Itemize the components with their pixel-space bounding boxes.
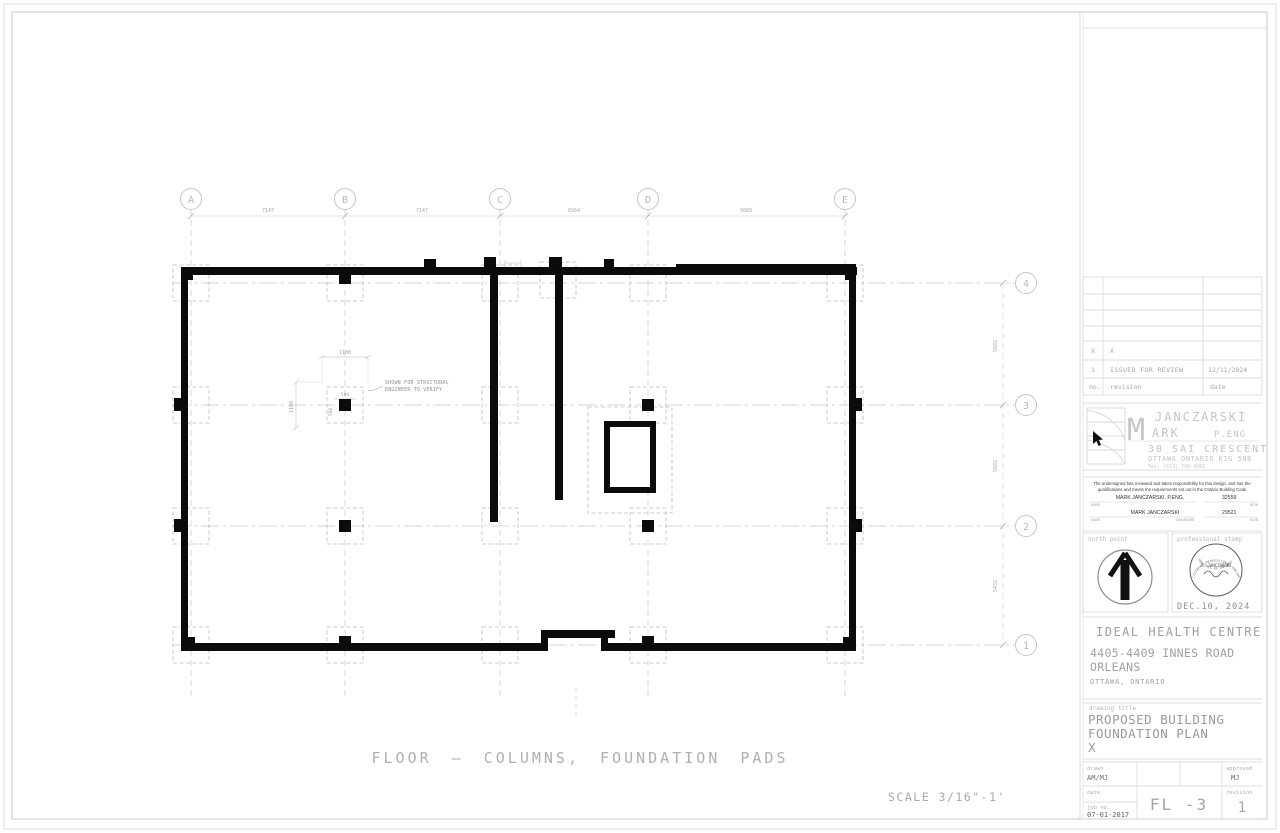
decl-name1: MARK JANCZARSKI, P.ENG. (1116, 495, 1185, 501)
stamp-text-mid: J. JANCZARSKI (1200, 563, 1232, 568)
drawing-title-line3: X (1088, 740, 1096, 755)
firm-peng: P.ENG (1214, 430, 1246, 440)
project-city: OTTAWA, ONTARIO (1090, 678, 1165, 686)
firm-address2: OTTAWA ONTARIO K1G 5N8 (1148, 455, 1252, 463)
scale-label: SCALE 3/16"-1' (888, 790, 1006, 804)
floor-plan-svg: 7147 7147 6564 9089 5682 5682 5432 A B C… (0, 0, 1280, 833)
north-point-label: north point (1088, 536, 1128, 543)
column-d3 (642, 399, 654, 411)
pad-dim-height: 1100 (289, 401, 295, 413)
walls (174, 257, 862, 651)
grid-bubble-4: 4 (1023, 279, 1029, 290)
decl-line2: qualifications and meets the requirement… (1098, 487, 1247, 492)
professional-stamp-box: professional stamp LICENSED PROFESSIONAL… (0, 0, 1262, 612)
stamp-label: professional stamp (1177, 536, 1242, 543)
pad-dim-width: 1100 (339, 350, 351, 356)
col-dim-height: 500 (328, 408, 334, 416)
grid-bubble-3: 3 (1023, 401, 1029, 412)
rev-row2-date: 12/11/2024 (1208, 366, 1247, 374)
engineer-note: SHOWN FOR STRUCTURAL ENGINEER TO VERIFY (368, 380, 449, 393)
stamp-signature (1204, 571, 1228, 577)
foundation-pads (173, 262, 863, 663)
decl-label-bcin1: BCIN (1250, 503, 1258, 507)
rev-row1-no: X (1091, 347, 1095, 355)
firm-name-top: JANCZARSKI (1155, 410, 1247, 424)
approved-value: MJ (1231, 774, 1239, 782)
grid-bubble-b: B (342, 195, 348, 206)
stamp-date: DEC.10, 2024 (1177, 602, 1250, 612)
decl-label-bcin2: BCIN (1250, 518, 1258, 522)
firm-logo-graphic (1087, 408, 1125, 464)
drawing-title-line1: PROPOSED BUILDING (1088, 712, 1224, 727)
column-d1 (642, 636, 654, 649)
column-b1 (339, 636, 351, 649)
firm-name-bottom: ARK (1152, 426, 1180, 440)
rev-header-no: no. (1089, 383, 1101, 391)
note-line-2: ENGINEER TO VERIFY (385, 387, 442, 393)
date-label: date (1087, 790, 1100, 796)
drawn-value: AM/MJ (1087, 774, 1108, 782)
sheet-number: FL -3 (1150, 795, 1208, 814)
project-box: IDEAL HEALTH CENTRE 4405-4409 INNES ROAD… (1083, 617, 1262, 699)
decl-bcin2: 29521 (1222, 510, 1237, 516)
firm-logo-block: M JANCZARSKI ARK P.ENG 30 SAI CRESCENT O… (1083, 403, 1268, 470)
firm-address1: 30 SAI CRESCENT (1148, 444, 1268, 455)
project-address2: ORLEANS (1090, 660, 1141, 674)
plan-caption: FLOOR — COLUMNS, FOUNDATION PADS (372, 749, 789, 767)
grid-bubble-e: E (842, 195, 848, 206)
grid-bubble-a: A (188, 195, 194, 206)
column-d2 (642, 520, 654, 532)
project-name: IDEAL HEALTH CENTRE (1096, 625, 1262, 639)
grid-lines (172, 210, 1015, 716)
rev-row2-no: 1 (1091, 366, 1095, 374)
revision-table: X X 1 ISSUED FOR REVIEW 12/11/2024 no. r… (1083, 277, 1262, 395)
column-b2 (339, 520, 351, 532)
revision-value: 1 (1238, 800, 1246, 816)
decl-label-name1: NAME (1091, 503, 1100, 507)
grid-bubble-c: C (497, 195, 503, 206)
approved-label: approved (1226, 766, 1253, 772)
north-point-box: north point (1083, 533, 1168, 612)
dim-d-e: 9089 (740, 208, 752, 214)
note-line-1: SHOWN FOR STRUCTURAL (385, 380, 449, 386)
grid-bubbles-top: A B C D E (181, 189, 856, 210)
declaration-block: The undersigned has reviewed and takes r… (1083, 477, 1262, 531)
drawing-sheet: 7147 7147 6564 9089 5682 5682 5432 A B C… (0, 0, 1280, 833)
revision-label: revision (1226, 790, 1253, 796)
dimension-line-right: 5682 5682 5432 (993, 280, 1006, 648)
rev-header-desc: revision (1110, 383, 1141, 391)
grid-bubble-d: D (645, 195, 651, 206)
decl-line1: The undersigned has reviewed and takes r… (1093, 481, 1251, 486)
column-b3 (339, 399, 351, 411)
rev-row1-desc: X (1110, 347, 1114, 355)
dim-b-c: 7147 (416, 208, 428, 214)
rev-header-date: date (1210, 383, 1226, 391)
drawing-title-box: drawing title PROPOSED BUILDING FOUNDATI… (1083, 703, 1262, 759)
drawing-title-label: drawing title (1089, 705, 1136, 712)
decl-label-signature: SIGNATURE (1176, 518, 1194, 522)
dimension-line-top: 7147 7147 6564 9089 (188, 208, 848, 219)
decl-name2: MARK JANCZARSKI (1131, 510, 1180, 516)
rev-row2-desc: ISSUED FOR REVIEW (1110, 366, 1183, 374)
drawn-label: drawn (1087, 766, 1104, 772)
interior-wall-c (490, 267, 498, 522)
jobno-value: 07-01-2017 (1087, 811, 1129, 819)
interior-wall-mid (555, 267, 563, 500)
grid-bubbles-right: 4 3 2 1 (1016, 273, 1037, 656)
grid-bubble-2: 2 (1023, 522, 1029, 533)
col-dim-width: 500 (341, 392, 349, 398)
firm-logo-m: M (1127, 413, 1145, 448)
dim-c-d: 6564 (568, 208, 580, 214)
dim-a-b: 7147 (262, 208, 274, 214)
north-arrow-icon (1098, 550, 1152, 604)
sheet-borders (4, 4, 1276, 829)
dim-2-1: 5432 (993, 580, 999, 592)
grid-bubble-1: 1 (1023, 641, 1029, 652)
dim-4-3: 5682 (993, 340, 999, 352)
decl-label-name2: NAME (1091, 518, 1100, 522)
shaft (607, 424, 653, 490)
meta-grid: drawn AM/MJ approved MJ date revision jo… (1083, 762, 1262, 819)
drawing-title-line2: FOUNDATION PLAN (1088, 726, 1208, 741)
decl-bcin1: 32559 (1222, 495, 1237, 501)
firm-phone: Tel: (613) 799-4982 (1148, 464, 1205, 470)
dim-3-2: 5682 (993, 460, 999, 472)
project-address1: 4405-4409 INNES ROAD (1090, 646, 1234, 660)
